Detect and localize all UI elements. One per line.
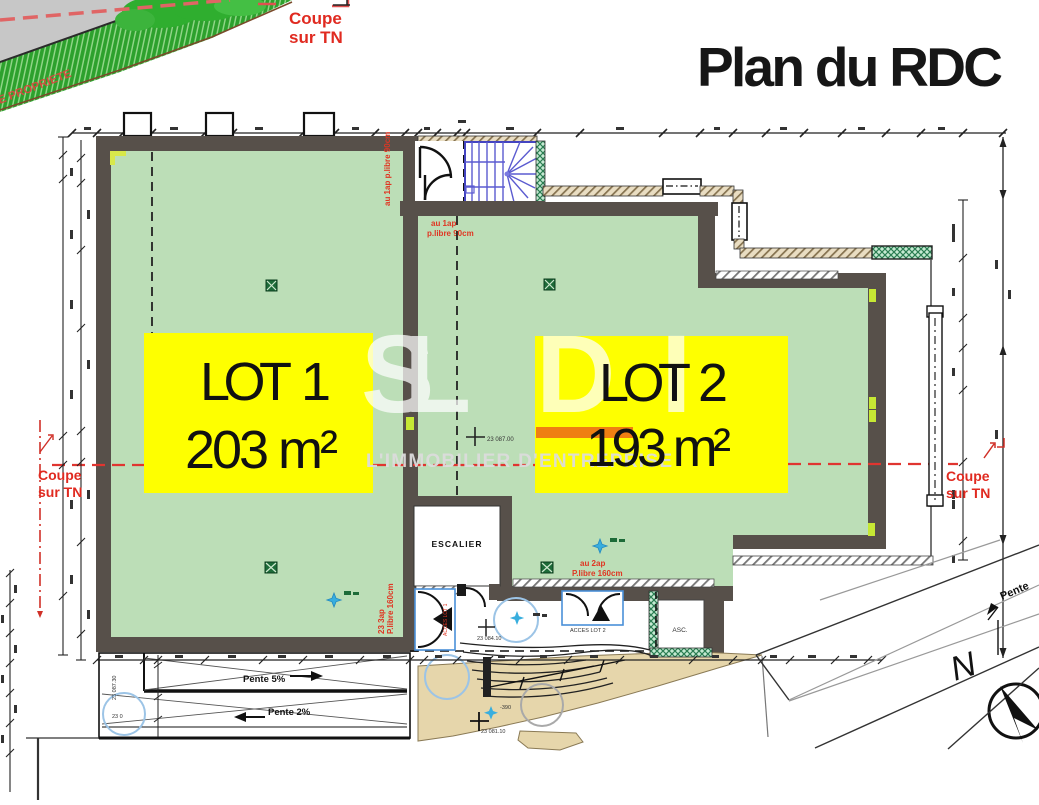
svg-text:23 081.10: 23 081.10 (481, 729, 505, 735)
svg-text:23 0: 23 0 (112, 714, 123, 720)
svg-text:L: L (404, 313, 471, 436)
svg-text:23 3ap: 23 3ap (377, 609, 386, 634)
svg-text:203 m²: 203 m² (185, 420, 338, 480)
svg-text:Pente 5%: Pente 5% (243, 674, 286, 685)
svg-text:Pente 2%: Pente 2% (268, 707, 311, 718)
svg-text:Coupe: Coupe (946, 468, 990, 484)
svg-text:Plan du RDC: Plan du RDC (697, 36, 1003, 98)
svg-text:23 087.00: 23 087.00 (487, 437, 514, 443)
svg-text:P.libre 160cm: P.libre 160cm (572, 569, 623, 578)
svg-text:ASC.: ASC. (672, 627, 687, 634)
svg-text:ACCES LOT 2: ACCES LOT 2 (570, 628, 606, 634)
svg-text:Coupe: Coupe (289, 9, 342, 28)
svg-text:-390: -390 (500, 705, 511, 711)
svg-text:sur TN: sur TN (946, 485, 990, 501)
svg-text:Coupe: Coupe (38, 467, 82, 483)
svg-text:1: 1 (301, 352, 331, 412)
svg-text:LOT: LOT (599, 353, 691, 413)
svg-text:2: 2 (698, 353, 728, 413)
svg-text:p.libre 90cm: p.libre 90cm (427, 229, 474, 238)
svg-text:au 1ap p.libre 90cm: au 1ap p.libre 90cm (383, 132, 392, 206)
svg-text:193 m²: 193 m² (586, 418, 731, 478)
svg-text:P.libre 160cm: P.libre 160cm (386, 583, 395, 634)
svg-text:au 2ap: au 2ap (580, 559, 605, 568)
svg-text:au 1ap: au 1ap (431, 219, 456, 228)
svg-text:23 084.10: 23 084.10 (477, 636, 501, 642)
svg-text:ESCALIER: ESCALIER (432, 539, 483, 549)
svg-text:sur TN: sur TN (289, 28, 343, 47)
svg-text:LOT: LOT (200, 352, 292, 412)
svg-text:23 087.30: 23 087.30 (112, 676, 118, 700)
svg-text:ACCES LOT 1: ACCES LOT 1 (443, 603, 449, 636)
svg-text:sur TN: sur TN (38, 484, 82, 500)
